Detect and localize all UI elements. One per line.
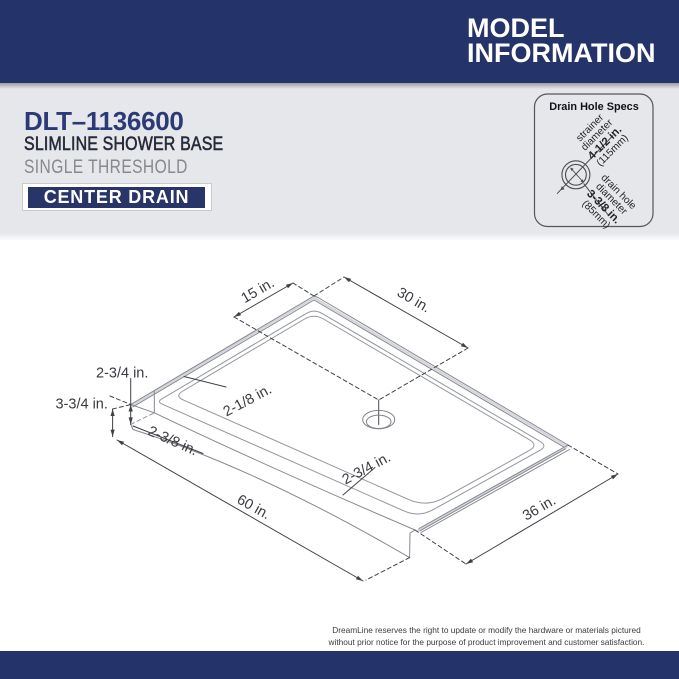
svg-text:15 in.: 15 in. [239,275,278,307]
svg-text:2-3/4 in.: 2-3/4 in. [96,366,148,382]
svg-text:2-3/8 in.: 2-3/8 in. [145,423,199,459]
svg-text:Drain Hole Specs: Drain Hole Specs [549,101,639,113]
svg-text:2-1/8 in.: 2-1/8 in. [221,382,275,421]
svg-text:36 in.: 36 in. [520,493,559,525]
svg-text:2-3/4 in.: 2-3/4 in. [340,450,394,489]
svg-text:30 in.: 30 in. [394,285,433,317]
svg-text:3-3/4 in.: 3-3/4 in. [56,397,108,413]
